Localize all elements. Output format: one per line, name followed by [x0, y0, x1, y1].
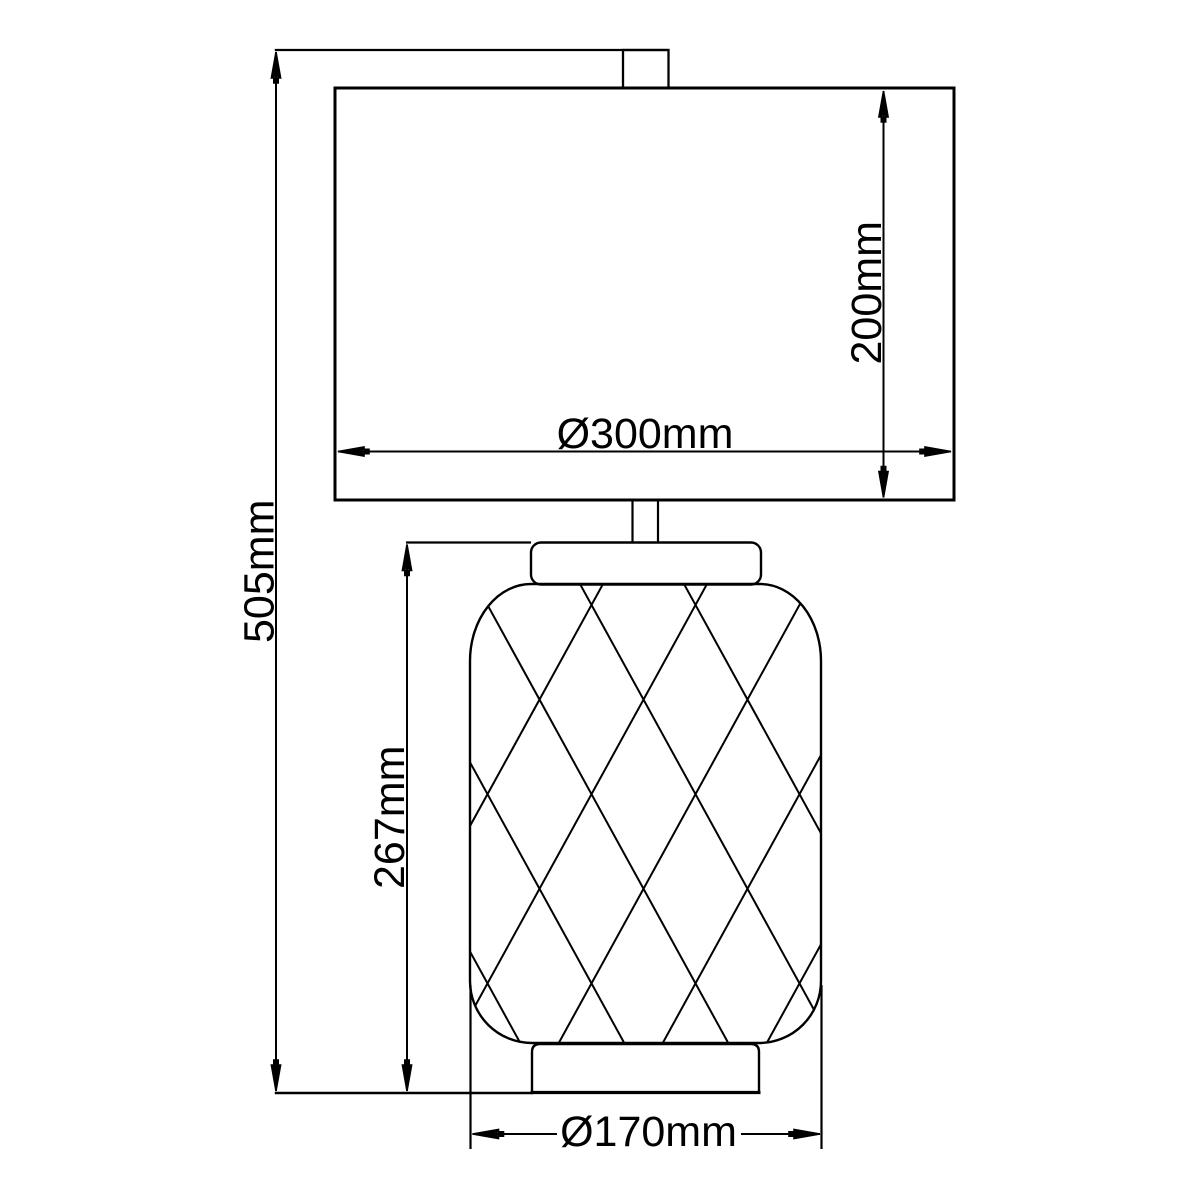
svg-text:Ø170mm: Ø170mm	[560, 1108, 737, 1156]
svg-text:267mm: 267mm	[366, 746, 414, 889]
svg-text:505mm: 505mm	[236, 500, 284, 643]
svg-text:200mm: 200mm	[843, 221, 891, 364]
svg-text:Ø300mm: Ø300mm	[557, 410, 734, 458]
